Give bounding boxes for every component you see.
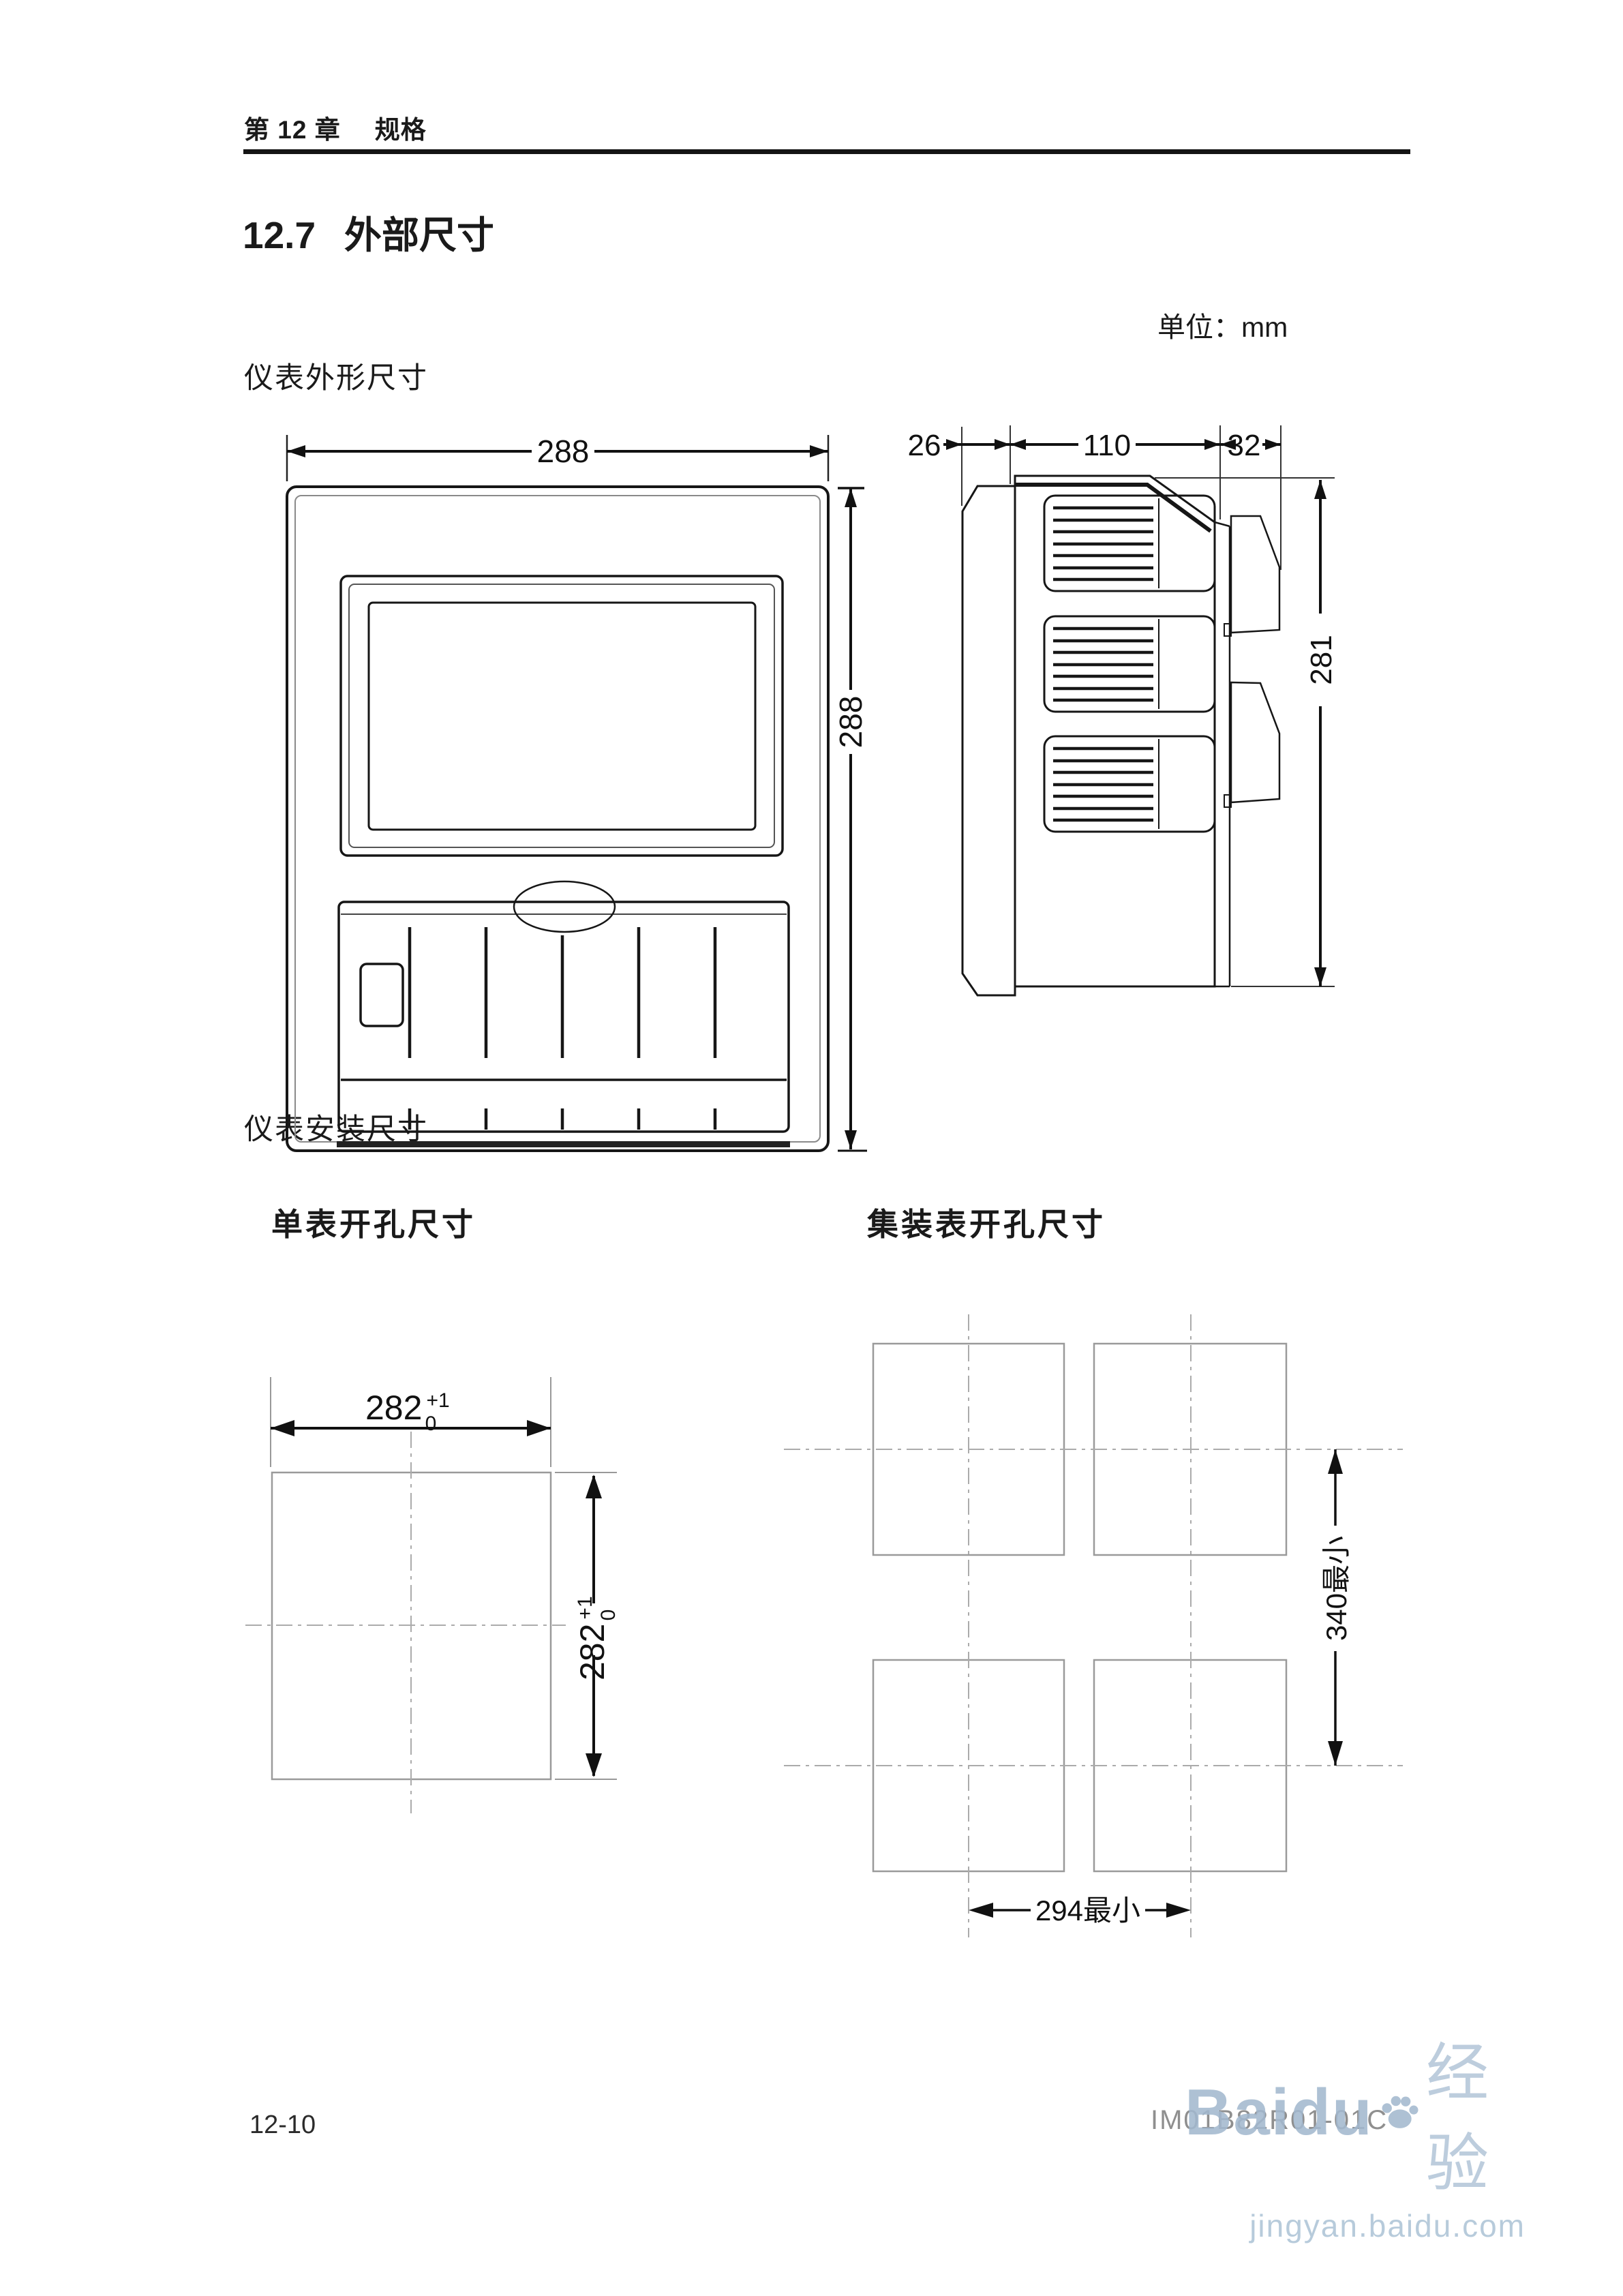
single-cutout-drawing: 282+10 282+10 — [225, 1329, 648, 1847]
header-rule — [243, 149, 1410, 154]
watermark-brand-text: Baidu — [1185, 2075, 1374, 2150]
watermark-suffix-text: 经验 — [1426, 2022, 1526, 2203]
front-width-dim-label: 288 — [537, 434, 590, 469]
manual-page: 第 12 章 规格 12.7 外部尺寸 单位：mm 仪表外形尺寸 仪表安装尺寸 … — [0, 0, 1623, 2296]
chapter-number: 第 12 章 — [244, 109, 341, 146]
single-cutout-width-tol-upper: +1 — [426, 1389, 449, 1412]
page-number: 12-10 — [249, 2111, 316, 2140]
outline-dimensions-label: 仪表外形尺寸 — [244, 354, 428, 397]
watermark-url: jingyan.baidu.com — [1185, 2207, 1526, 2244]
section-text: 外部尺寸 — [344, 205, 494, 259]
running-header: 第 12 章 规格 — [244, 109, 427, 146]
single-cutout-height-value: 282 — [573, 1624, 611, 1680]
cluster-cutout-heading: 集装表开孔尺寸 — [867, 1200, 1106, 1245]
side-view-drawing: 26 110 32 — [886, 402, 1377, 1029]
side-front-depth-label: 26 — [908, 429, 941, 462]
unit-note: 单位：mm — [1157, 304, 1288, 345]
cluster-cutout-drawing: 340最小 294最小 — [750, 1295, 1431, 1950]
header-spacer — [341, 109, 375, 146]
cluster-horizontal-min-label: 294最小 — [1035, 1894, 1140, 1927]
side-body-depth-label: 110 — [1083, 429, 1131, 462]
side-rear-depth-label: 32 — [1228, 429, 1261, 462]
single-cutout-width-value: 282 — [365, 1389, 422, 1427]
single-cutout-height-tol-upper: +1 — [574, 1596, 596, 1619]
front-view-drawing: 288 288 — [259, 409, 886, 1173]
watermark: Baidu 经验 jingyan.baidu.com — [1185, 2022, 1526, 2244]
single-cutout-width-tol-lower: 0 — [425, 1413, 437, 1435]
chapter-name: 规格 — [375, 109, 427, 146]
single-cutout-heading: 单表开孔尺寸 — [271, 1200, 476, 1245]
side-height-dim-label: 281 — [1305, 635, 1338, 684]
watermark-brand-row: Baidu 经验 — [1185, 2022, 1526, 2203]
section-number: 12.7 — [243, 213, 316, 257]
front-height-dim-label: 288 — [833, 696, 868, 749]
cluster-vertical-min-label: 340最小 — [1320, 1536, 1352, 1641]
single-cutout-height-tol-lower: 0 — [597, 1610, 620, 1621]
paw-icon — [1378, 2083, 1422, 2142]
section-title: 12.7 外部尺寸 — [243, 205, 494, 259]
single-cutout-height-label: 282+10 — [573, 1596, 620, 1680]
